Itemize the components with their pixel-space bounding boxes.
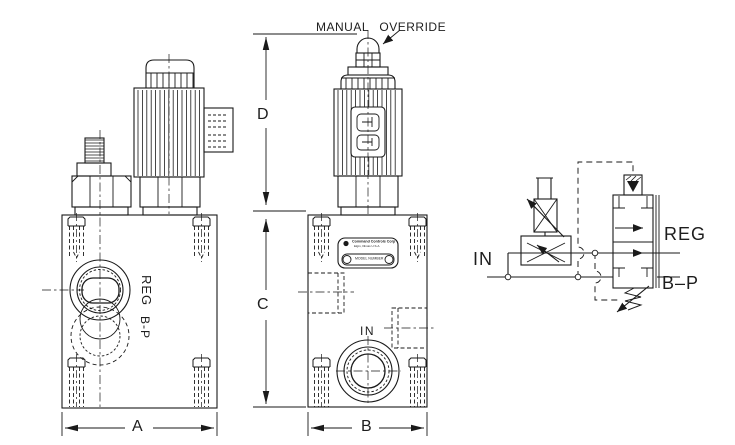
valve-technical-drawing: MANUAL OVERRIDE D C A B REG B-P IN Comma… <box>0 0 735 445</box>
dim-b-label: B <box>361 419 372 435</box>
front-centerlines <box>42 54 169 408</box>
spool-valve <box>613 175 659 312</box>
mounting-hole <box>409 213 426 262</box>
dim-c-label: C <box>257 297 269 313</box>
side-view <box>298 30 436 407</box>
mounting-hole <box>409 354 426 407</box>
proportional-throttle-valve <box>521 236 571 265</box>
manual-override-label: MANUAL OVERRIDE <box>316 21 446 33</box>
front-adjustment-screw <box>72 138 131 215</box>
dim-a-label: A <box>132 419 143 435</box>
dimension-lines <box>62 30 427 436</box>
pilot-line <box>578 162 633 277</box>
dim-d-label: D <box>257 107 269 123</box>
front-connector <box>204 108 233 152</box>
dim-d-line <box>253 34 357 211</box>
nameplate-logo-dot <box>343 241 348 246</box>
schematic <box>487 162 680 312</box>
front-bp-port-label: B-P <box>139 316 151 339</box>
front-reg-port-label: REG <box>140 275 153 306</box>
proportional-solenoid <box>527 178 564 237</box>
front-view <box>42 54 233 408</box>
schematic-reg-label: REG <box>664 225 706 243</box>
side-body <box>308 215 427 407</box>
side-port-left <box>308 273 344 313</box>
mounting-hole <box>313 354 330 407</box>
front-solenoid <box>134 60 233 215</box>
mounting-hole <box>313 213 330 262</box>
mounting-hole <box>193 213 210 262</box>
drawing-linework <box>0 0 735 445</box>
mounting-hole <box>68 213 85 262</box>
nameplate-model: MODEL NUMBER <box>355 257 383 261</box>
spring-symbol <box>617 286 649 312</box>
nameplate-brand: Command Controls Corp <box>352 240 395 244</box>
mounting-hole <box>68 354 85 407</box>
mounting-hole <box>193 354 210 407</box>
schematic-bp-label: B–P <box>662 274 699 292</box>
side-in-port-label: IN <box>360 325 375 337</box>
side-centerlines <box>298 30 436 406</box>
manual-override-symbol <box>624 175 642 195</box>
dim-c-line <box>253 219 306 407</box>
schematic-in-label: IN <box>473 250 493 268</box>
nameplate-location: Elgin, Illinois U.S.A. <box>354 245 380 248</box>
